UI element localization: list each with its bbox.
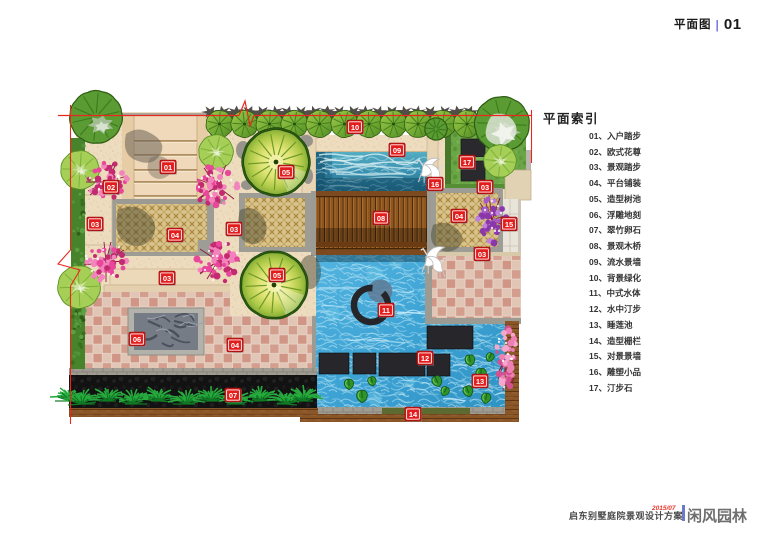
svg-text:05: 05 — [282, 168, 290, 177]
svg-text:14: 14 — [409, 410, 418, 419]
svg-text:07: 07 — [229, 391, 237, 400]
svg-text:04: 04 — [455, 212, 464, 221]
svg-text:08: 08 — [377, 214, 385, 223]
svg-text:03: 03 — [91, 220, 99, 229]
svg-text:03: 03 — [478, 250, 486, 259]
svg-text:05: 05 — [273, 271, 281, 280]
svg-text:10: 10 — [351, 123, 359, 132]
svg-text:16: 16 — [431, 180, 439, 189]
svg-text:12: 12 — [421, 354, 429, 363]
svg-text:03: 03 — [230, 225, 238, 234]
svg-text:13: 13 — [476, 377, 484, 386]
svg-text:03: 03 — [163, 274, 171, 283]
svg-text:02: 02 — [107, 183, 115, 192]
svg-text:06: 06 — [133, 335, 141, 344]
svg-text:09: 09 — [393, 146, 401, 155]
svg-text:03: 03 — [481, 183, 489, 192]
svg-text:04: 04 — [171, 231, 180, 240]
svg-text:11: 11 — [382, 306, 390, 315]
svg-text:17: 17 — [463, 158, 471, 167]
svg-text:15: 15 — [505, 220, 513, 229]
svg-text:01: 01 — [164, 163, 172, 172]
svg-text:04: 04 — [231, 341, 240, 350]
